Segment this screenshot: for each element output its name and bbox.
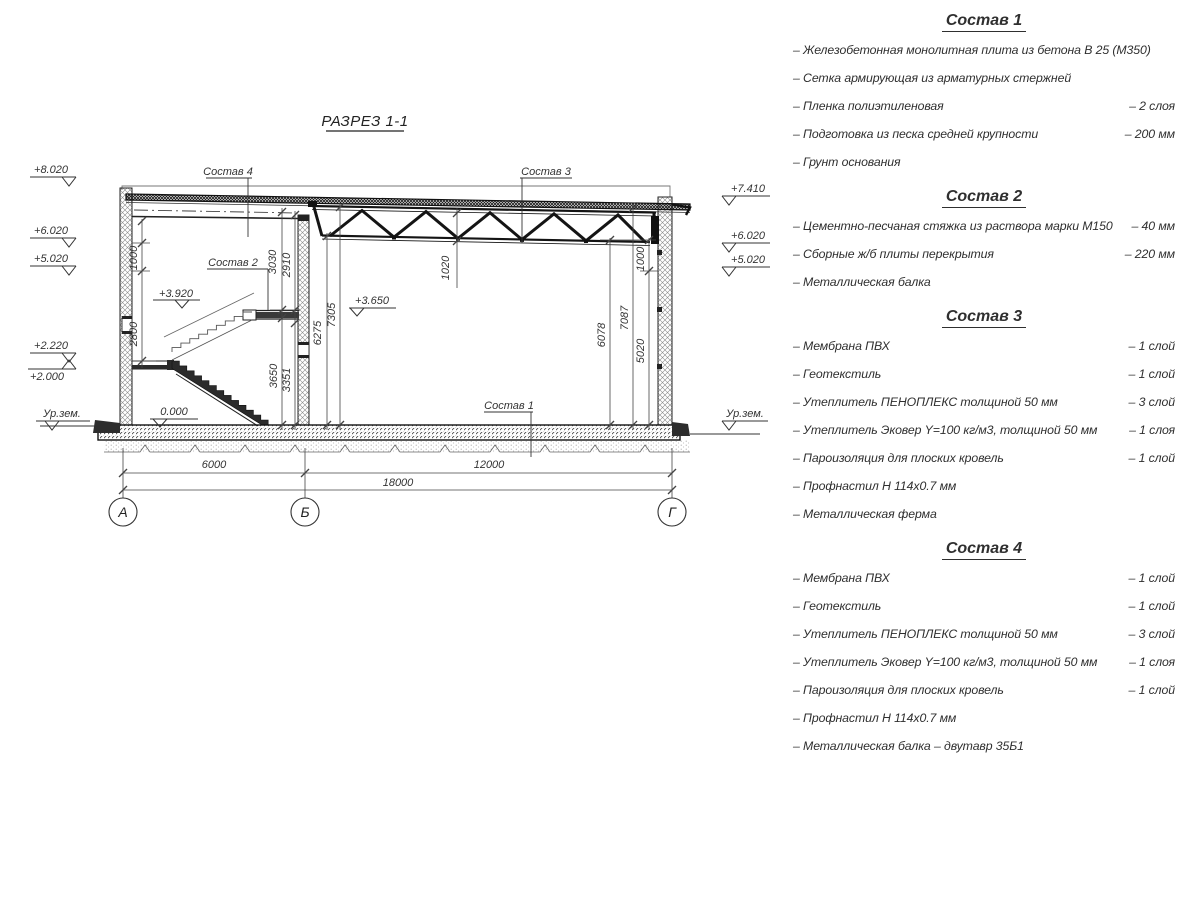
callout-sostav2: Состав 2 <box>207 257 268 310</box>
composition-section-4: Состав 4 – Мембрана ПВХ– 1 слой – Геотек… <box>793 540 1175 753</box>
composition-item: – Профнастил Н 114х0.7 мм <box>793 480 1175 493</box>
right-wall <box>657 197 672 425</box>
mezzanine-beam-end <box>243 310 256 320</box>
elevation-mark: +6.020 <box>30 225 76 247</box>
composition-item: – Пленка полиэтиленовая– 2 слоя <box>793 100 1175 113</box>
dim-1000-right: 1000 <box>635 246 647 271</box>
floor-slab <box>40 420 760 452</box>
composition-item: – Грунт основания <box>793 156 1175 169</box>
composition-panel: Состав 1 – Железобетонная монолитная пли… <box>793 12 1175 772</box>
composition-item: – Геотекстиль– 1 слой <box>793 368 1175 381</box>
elevation-mark: +7.410 <box>722 183 770 205</box>
dim-2910: 2910 <box>281 252 293 278</box>
axis-label-b: Б <box>300 504 309 520</box>
elevation-mark: +5.020 <box>722 254 770 276</box>
level-mark: +3.920 <box>153 288 200 308</box>
composition-title: Состав 2 <box>793 188 1175 208</box>
ground-level-mark: Ур.зем. <box>722 408 768 430</box>
elevation-value: +2.000 <box>30 371 65 383</box>
dim-6078: 6078 <box>596 322 608 347</box>
elevation-mark: +6.020 <box>722 230 770 252</box>
composition-item: – Подготовка из песка средней крупности–… <box>793 128 1175 141</box>
composition-item: – Металлическая балка – двутавр 35Б1 <box>793 740 1175 753</box>
dim-7087: 7087 <box>619 305 631 330</box>
bottom-dimensions: 6000 12000 18000 <box>119 448 676 498</box>
composition-item: – Геотекстиль– 1 слой <box>793 600 1175 613</box>
composition-item: – Профнастил Н 114х0.7 мм <box>793 712 1175 725</box>
composition-item: – Пароизоляция для плоских кровель– 1 сл… <box>793 452 1175 465</box>
elevation-mark: +2.220 <box>30 340 76 362</box>
drawing-title-text: РАЗРЕЗ 1-1 <box>321 113 408 130</box>
elevation-value: +7.410 <box>731 183 766 195</box>
elevation-value: +8.020 <box>34 164 69 176</box>
dim-1020: 1020 <box>440 255 452 280</box>
footing-left <box>93 420 120 433</box>
dim-3351: 3351 <box>281 368 293 392</box>
composition-title-text: Состав 3 <box>942 308 1026 328</box>
composition-title-text: Состав 1 <box>942 12 1026 32</box>
composition-item: – Сетка армирующая из арматурных стержне… <box>793 72 1175 85</box>
left-wall <box>120 188 132 425</box>
elevation-value: Ур.зем. <box>725 408 764 420</box>
composition-item: – Утеплитель ПЕНОПЛЕКС толщиной 50 мм– 3… <box>793 628 1175 641</box>
composition-item: – Металлическая балка <box>793 276 1175 289</box>
footing-right <box>672 422 690 436</box>
truss-end-post-left <box>314 207 322 236</box>
composition-item: – Железобетонная монолитная плита из бет… <box>793 44 1175 57</box>
drawing-title: РАЗРЕЗ 1-1 <box>321 113 408 131</box>
composition-item: – Сборные ж/б плиты перекрытия– 220 мм <box>793 248 1175 261</box>
level-value: 0.000 <box>160 406 188 418</box>
composition-item: – Утеплитель Эковер Y=100 кг/м3, толщино… <box>793 656 1175 669</box>
callout-label: Состав 1 <box>484 400 534 412</box>
interior-level-marks: +3.920 +3.650 0.000 <box>150 288 396 427</box>
dim-6275: 6275 <box>312 320 324 345</box>
left-bay-ceiling <box>132 210 298 219</box>
composition-title: Состав 3 <box>793 308 1175 328</box>
dim-2800: 2800 <box>128 321 140 347</box>
elevation-marks-right: +7.410 +6.020 +5.020 Ур.зем. <box>722 183 770 430</box>
elevation-mark: +5.020 <box>30 253 76 275</box>
axis-label-a: А <box>117 504 127 520</box>
dim-5020: 5020 <box>635 338 647 363</box>
wall-embed-box <box>298 344 309 356</box>
dim-6000: 6000 <box>202 459 227 471</box>
elevation-value: +2.220 <box>34 340 69 352</box>
composition-section-2: Состав 2 – Цементно-песчаная стяжка из р… <box>793 188 1175 289</box>
composition-item: – Металлическая ферма <box>793 508 1175 521</box>
composition-title-text: Состав 2 <box>942 188 1026 208</box>
elevation-mark: +2.000 <box>28 360 76 383</box>
section-drawing: РАЗРЕЗ 1-1 <box>0 0 790 560</box>
dim-12000: 12000 <box>474 459 505 471</box>
level-mark: 0.000 <box>150 406 198 427</box>
level-mark: +3.650 <box>349 295 396 316</box>
composition-section-1: Состав 1 – Железобетонная монолитная пли… <box>793 12 1175 169</box>
dim-3030: 3030 <box>267 249 279 274</box>
callout-label: Состав 4 <box>203 166 253 178</box>
elevation-value: +5.020 <box>731 254 766 266</box>
elevation-value: +5.020 <box>34 253 69 265</box>
elevation-value: Ур.зем. <box>42 408 81 420</box>
composition-item: – Мембрана ПВХ– 1 слой <box>793 340 1175 353</box>
elevation-value: +6.020 <box>34 225 69 237</box>
dim-1000-left: 1000 <box>128 245 140 270</box>
composition-item: – Мембрана ПВХ– 1 слой <box>793 572 1175 585</box>
callout-label: Состав 3 <box>521 166 572 178</box>
composition-item: – Пароизоляция для плоских кровель– 1 сл… <box>793 684 1175 697</box>
elevation-marks-left: +8.020 +6.020 +5.020 +2.220 +2.000 Ур.зе… <box>28 164 90 430</box>
composition-title: Состав 4 <box>793 540 1175 560</box>
level-value: +3.920 <box>159 288 194 300</box>
composition-item: – Утеплитель Эковер Y=100 кг/м3, толщино… <box>793 424 1175 437</box>
level-value: +3.650 <box>355 295 390 307</box>
mezzanine-slab <box>243 310 299 320</box>
middle-wall <box>298 215 309 425</box>
dim-18000: 18000 <box>383 477 414 489</box>
composition-title-text: Состав 4 <box>942 540 1026 560</box>
blueprint-sheet: РАЗРЕЗ 1-1 <box>0 0 1200 900</box>
composition-item: – Цементно-песчаная стяжка из раствора м… <box>793 220 1175 233</box>
composition-title: Состав 1 <box>793 12 1175 32</box>
elevation-mark: +8.020 <box>30 164 76 186</box>
ground-level-mark: Ур.зем. <box>36 408 90 430</box>
composition-item: – Утеплитель ПЕНОПЛЕКС толщиной 50 мм– 3… <box>793 396 1175 409</box>
dim-3650: 3650 <box>268 363 280 388</box>
axis-bubbles: А Б Г <box>109 498 686 526</box>
callout-label: Состав 2 <box>208 257 258 269</box>
dim-7305: 7305 <box>326 302 338 327</box>
sand-bed <box>104 440 690 452</box>
elevation-value: +6.020 <box>731 230 766 242</box>
stair-flight-behind <box>172 312 252 352</box>
composition-section-3: Состав 3 – Мембрана ПВХ– 1 слой – Геотек… <box>793 308 1175 521</box>
